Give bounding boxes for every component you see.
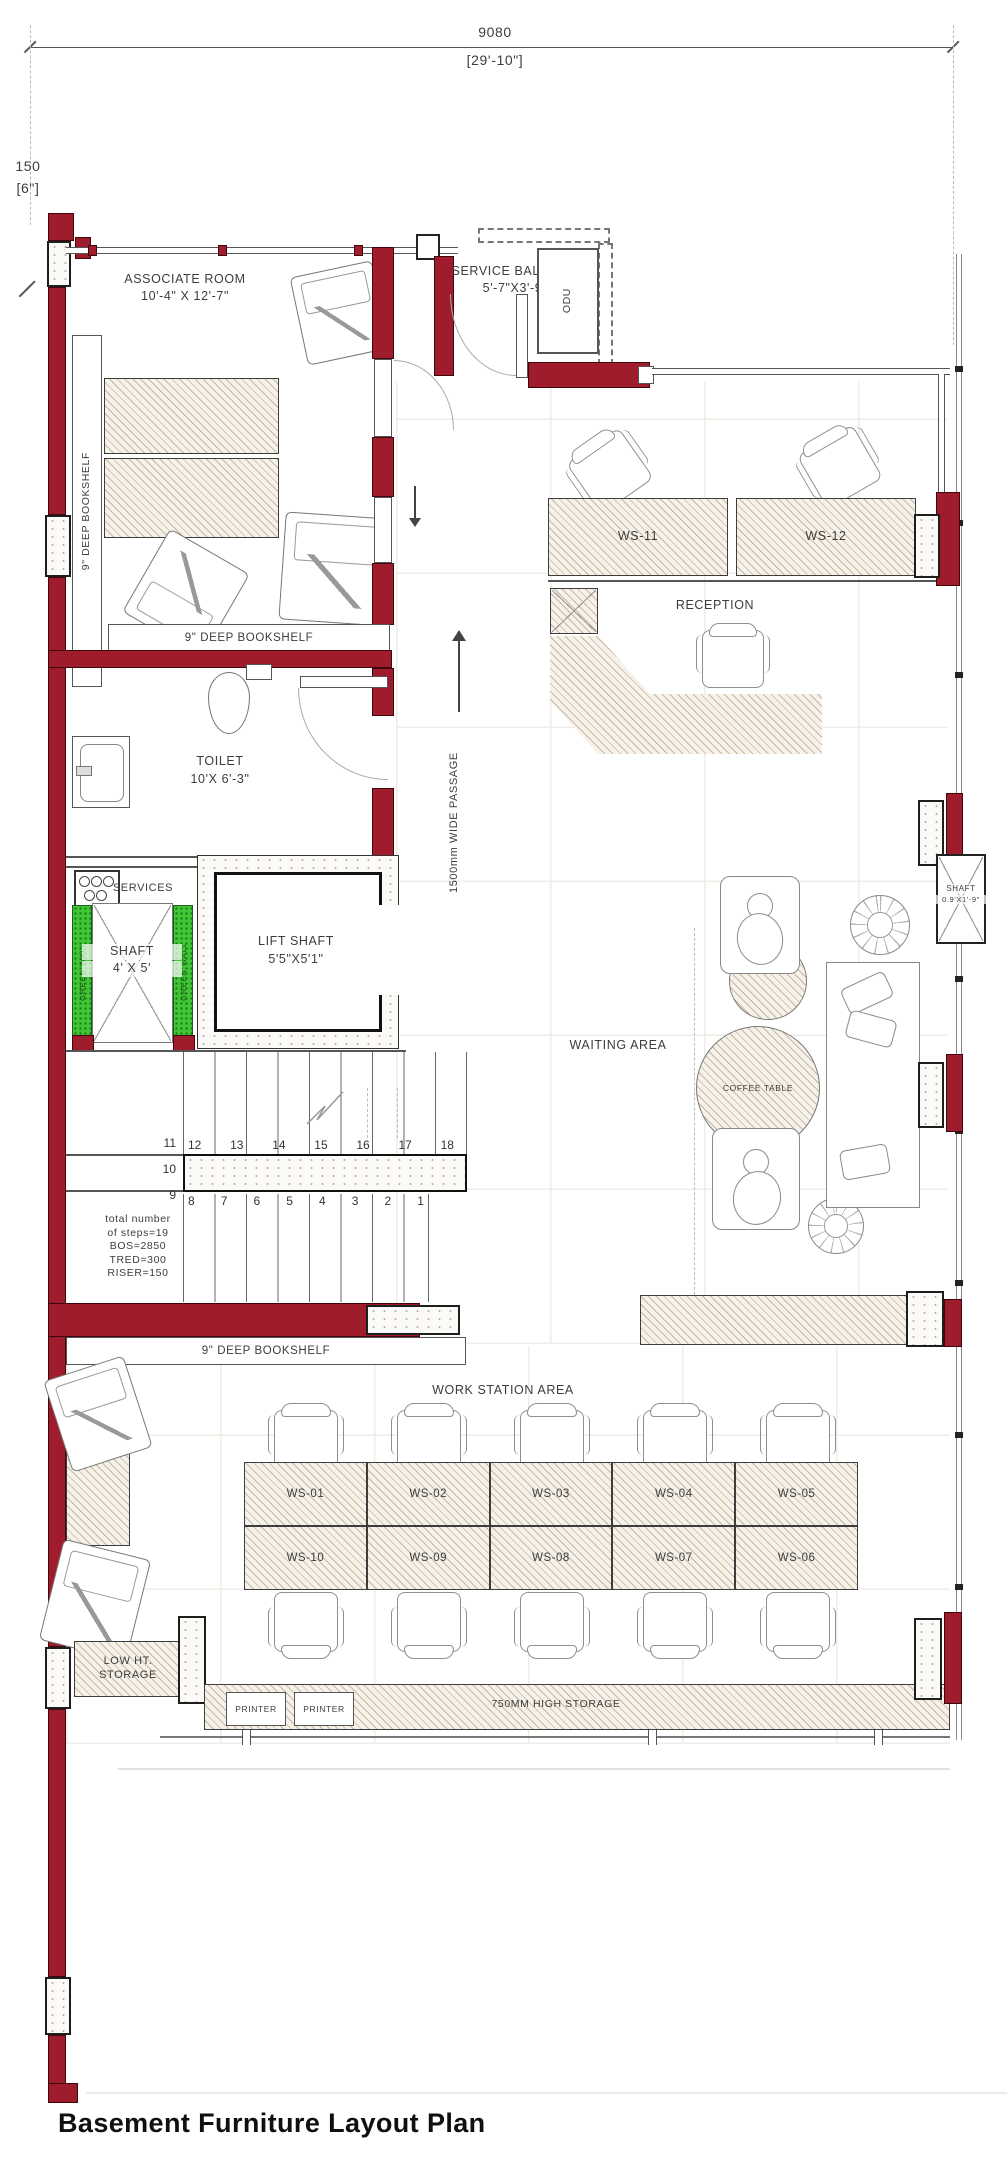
- desk-front-edge: [548, 580, 940, 582]
- passage-arrow-shaft: [458, 640, 460, 712]
- office-chair: [643, 1410, 707, 1470]
- shelf-block: [366, 1305, 460, 1335]
- low-storage-label1: LOW HT.: [104, 1655, 153, 1669]
- column: [178, 1616, 206, 1704]
- cabinet-cross: [552, 590, 596, 632]
- column: [914, 1618, 942, 1700]
- dim-left-mm: 150: [8, 158, 48, 176]
- column: [914, 514, 940, 578]
- office-chair: [766, 1410, 830, 1470]
- burner-icon: [96, 890, 107, 901]
- stair-number: 8: [188, 1194, 195, 1208]
- office-chair: [274, 1410, 338, 1470]
- room-label-rshaft: SHAFT: [938, 884, 984, 894]
- wc-bowl: [208, 672, 250, 734]
- bookshelf-vertical: 9" DEEP BOOKSHELF: [72, 335, 102, 687]
- stair-number: 1: [417, 1194, 424, 1208]
- room-size-toilet: 10'X 6'-3": [160, 772, 280, 788]
- wall-segment: [173, 1035, 195, 1051]
- door-leaf: [516, 294, 528, 378]
- wall-segment: [528, 362, 650, 388]
- stair-note-line: BOS=2850: [86, 1240, 190, 1254]
- room-size-shaft: 4' X 5': [82, 961, 182, 977]
- wall-segment: [372, 437, 394, 497]
- stair-number: 7: [221, 1194, 228, 1208]
- post: [354, 245, 363, 256]
- pillow: [844, 1009, 898, 1048]
- mullion: [955, 672, 963, 678]
- wall-segment: [48, 577, 66, 1647]
- centerline-right: [953, 25, 954, 345]
- stair-flight-lower: [183, 1194, 429, 1302]
- desk-cell: WS-09: [367, 1526, 490, 1590]
- armchair-person: [720, 876, 800, 974]
- stair-break-line: [367, 1088, 368, 1138]
- bookshelf-mid: 9" DEEP BOOKSHELF: [108, 624, 390, 652]
- stair-number: 2: [385, 1194, 392, 1208]
- door-swing-arc: [298, 688, 388, 780]
- stair-numbers-lower: 87654321: [188, 1194, 424, 1208]
- post: [218, 245, 227, 256]
- direction-arrow-shaft: [414, 486, 416, 522]
- wc-tank: [246, 664, 272, 680]
- office-chair: [766, 1592, 830, 1652]
- credenza: [640, 1295, 912, 1345]
- terrace-edge-return: [938, 374, 945, 494]
- person-body: [729, 1167, 786, 1229]
- wall-segment: [372, 247, 394, 359]
- armchair-person: [712, 1128, 800, 1230]
- office-chair: [274, 1592, 338, 1652]
- pillow: [839, 1143, 891, 1181]
- plan-title: Basement Furniture Layout Plan: [58, 2108, 486, 2139]
- printer-label: PRINTER: [235, 1704, 277, 1715]
- stair-number: 18: [441, 1138, 454, 1152]
- door-leaf: [300, 676, 388, 688]
- lift-door-gap: [378, 905, 399, 995]
- high-storage-label: 750MM HIGH STORAGE: [466, 1698, 646, 1711]
- wall-end-cap: [48, 2083, 78, 2103]
- bookshelf-mid-label: 9" DEEP BOOKSHELF: [185, 631, 313, 645]
- stair-number: 14: [272, 1138, 285, 1152]
- stair-numbers-upper: 12131415161718: [188, 1138, 454, 1152]
- column-marker: [874, 1730, 883, 1745]
- stair-number: 15: [314, 1138, 327, 1152]
- post: [88, 245, 97, 256]
- stair-number: 4: [319, 1194, 326, 1208]
- desk-label-ws11: WS-11: [618, 529, 658, 545]
- stair-note-line: total number: [86, 1213, 190, 1227]
- column: [918, 1062, 944, 1128]
- odu-unit: ODU: [537, 248, 599, 354]
- curtain-wall-right: [956, 254, 962, 1740]
- dim-top-ft: [29'-10"]: [445, 52, 545, 70]
- office-chair: [397, 1410, 461, 1470]
- terrace-edge: [652, 368, 950, 375]
- wall-segment: [48, 2035, 66, 2087]
- column-marker: [648, 1730, 657, 1745]
- printer: PRINTER: [294, 1692, 354, 1726]
- stair-number: 13: [230, 1138, 243, 1152]
- stair-number: 9: [169, 1188, 176, 1202]
- arrow-head-up: [452, 630, 466, 641]
- floor-plan: 9080 [29'-10"] 150 [6"] ASSOCIATE ROOM 1…: [0, 0, 1007, 2184]
- stair-note-line: RISER=150: [86, 1267, 190, 1281]
- stair-number: 12: [188, 1138, 201, 1152]
- partition-top: [66, 247, 458, 254]
- stair-number: 5: [286, 1194, 293, 1208]
- area-label-workstation: WORK STATION AREA: [368, 1383, 638, 1399]
- stair-break-line: [397, 1088, 398, 1138]
- bookshelf-vertical-label: 9" DEEP BOOKSHELF: [80, 452, 93, 570]
- reception-chair: [702, 630, 764, 688]
- office-chair: [397, 1592, 461, 1652]
- desk-cell: WS-10: [244, 1526, 367, 1590]
- arrow-head-down: [409, 518, 421, 527]
- room-label-lift: LIFT SHAFT: [236, 934, 356, 950]
- dim-top-mm: 9080: [455, 24, 535, 42]
- desk-cell: WS-02: [367, 1462, 490, 1526]
- desk-cell: WS-01: [244, 1462, 367, 1526]
- sofa: [826, 962, 920, 1208]
- person-body: [732, 909, 788, 969]
- slab-outline: [118, 1768, 950, 1770]
- column-marker: [242, 1730, 251, 1745]
- column: [45, 515, 71, 577]
- wall-segment: [946, 1054, 963, 1132]
- desk-label-ws12: WS-12: [805, 529, 846, 545]
- room-label-shaft: SHAFT: [82, 944, 182, 960]
- door-leaf: [374, 359, 392, 437]
- stair-landing: [183, 1154, 467, 1192]
- room-size-rshaft: 0.9'X1'-9": [934, 895, 988, 904]
- wall-segment: [48, 1303, 420, 1337]
- low-storage-label2: STORAGE: [99, 1669, 157, 1683]
- mullion: [955, 366, 963, 372]
- services-label: SERVICES: [108, 882, 178, 896]
- column: [906, 1291, 944, 1347]
- stair-note-line: TRED=300: [86, 1254, 190, 1268]
- office-chair: [643, 1592, 707, 1652]
- bookshelf-lower: 9" DEEP BOOKSHELF: [66, 1337, 466, 1365]
- desk: [104, 458, 279, 538]
- faucet: [76, 766, 92, 776]
- low-height-storage: LOW HT. STORAGE: [74, 1641, 182, 1697]
- room-label-associate: ASSOCIATE ROOM: [105, 272, 265, 288]
- burner-icon: [79, 876, 90, 887]
- carpet-edge: [694, 928, 695, 1300]
- odu-label: ODU: [561, 288, 574, 313]
- rug-spiral: [850, 895, 910, 955]
- workstation-table: WS-01 WS-02 WS-03 WS-04 WS-05 WS-10 WS-0…: [244, 1462, 858, 1590]
- wall-segment: [72, 1035, 94, 1051]
- burner-icon: [91, 876, 102, 887]
- coffee-table-label: COFFEE TABLE: [723, 1083, 793, 1094]
- break-symbol: [303, 1086, 355, 1132]
- balcony-edge-right: [598, 243, 613, 365]
- column: [45, 1647, 71, 1709]
- wall-segment: [48, 213, 74, 241]
- desk-cell: WS-08: [490, 1526, 613, 1590]
- desk: [104, 378, 279, 454]
- room-size-associate: 10'-4" X 12'-7": [105, 289, 265, 305]
- burner-icon: [84, 890, 95, 901]
- office-chair: [520, 1410, 584, 1470]
- stair-note-line: of steps=19: [86, 1227, 190, 1241]
- desk-cell: WS-06: [735, 1526, 858, 1590]
- mullion: [955, 976, 963, 982]
- desk-cell: WS-05: [735, 1462, 858, 1526]
- printer-label: PRINTER: [303, 1704, 345, 1715]
- column: [45, 1977, 71, 2035]
- area-label-reception: RECEPTION: [640, 598, 790, 614]
- storage-front-edge: [160, 1736, 950, 1738]
- room-label-toilet: TOILET: [160, 754, 280, 770]
- office-chair: [520, 1592, 584, 1652]
- desk-cell: WS-03: [490, 1462, 613, 1526]
- pillow: [839, 970, 894, 1016]
- desk-ws11: WS-11: [548, 498, 728, 576]
- dim-tick-left-wall: [19, 280, 36, 297]
- room-size-lift: 5'5"X5'1": [236, 952, 356, 968]
- desk-cell: WS-07: [612, 1526, 735, 1590]
- stair-number: 11: [164, 1136, 176, 1150]
- door-swing-arc: [450, 294, 516, 376]
- glass-partition: [374, 497, 392, 563]
- wall-segment: [944, 1612, 962, 1704]
- balcony-edge-top: [478, 228, 610, 243]
- stair-number: 16: [356, 1138, 369, 1152]
- wall-segment: [48, 287, 66, 515]
- passage-label: 1500mm WIDE PASSAGE: [448, 735, 462, 910]
- dim-left-ft: [6"]: [8, 180, 48, 198]
- wall-segment: [48, 650, 392, 668]
- mullion: [955, 1584, 963, 1590]
- dimension-line-top: [30, 47, 953, 48]
- wall-segment: [372, 788, 394, 858]
- footer-divider: [86, 2092, 1007, 2094]
- wall-segment: [48, 1709, 66, 1977]
- desk-ws12: WS-12: [736, 498, 916, 576]
- desk-cell: WS-04: [612, 1462, 735, 1526]
- stair-number: 3: [352, 1194, 359, 1208]
- stair-number: 6: [254, 1194, 261, 1208]
- printer: PRINTER: [226, 1692, 286, 1726]
- mullion: [955, 1280, 963, 1286]
- bookshelf-lower-label: 9" DEEP BOOKSHELF: [202, 1344, 330, 1358]
- mullion: [955, 1432, 963, 1438]
- stair-numbers-left: 11109: [146, 1136, 176, 1202]
- stair-note: total number of steps=19 BOS=2850 TRED=3…: [86, 1213, 190, 1281]
- wall-segment: [944, 1299, 962, 1347]
- wall-segment: [372, 563, 394, 625]
- stair-number: 17: [398, 1138, 411, 1152]
- stair-number: 10: [163, 1162, 176, 1176]
- area-label-waiting: WAITING AREA: [556, 1038, 680, 1054]
